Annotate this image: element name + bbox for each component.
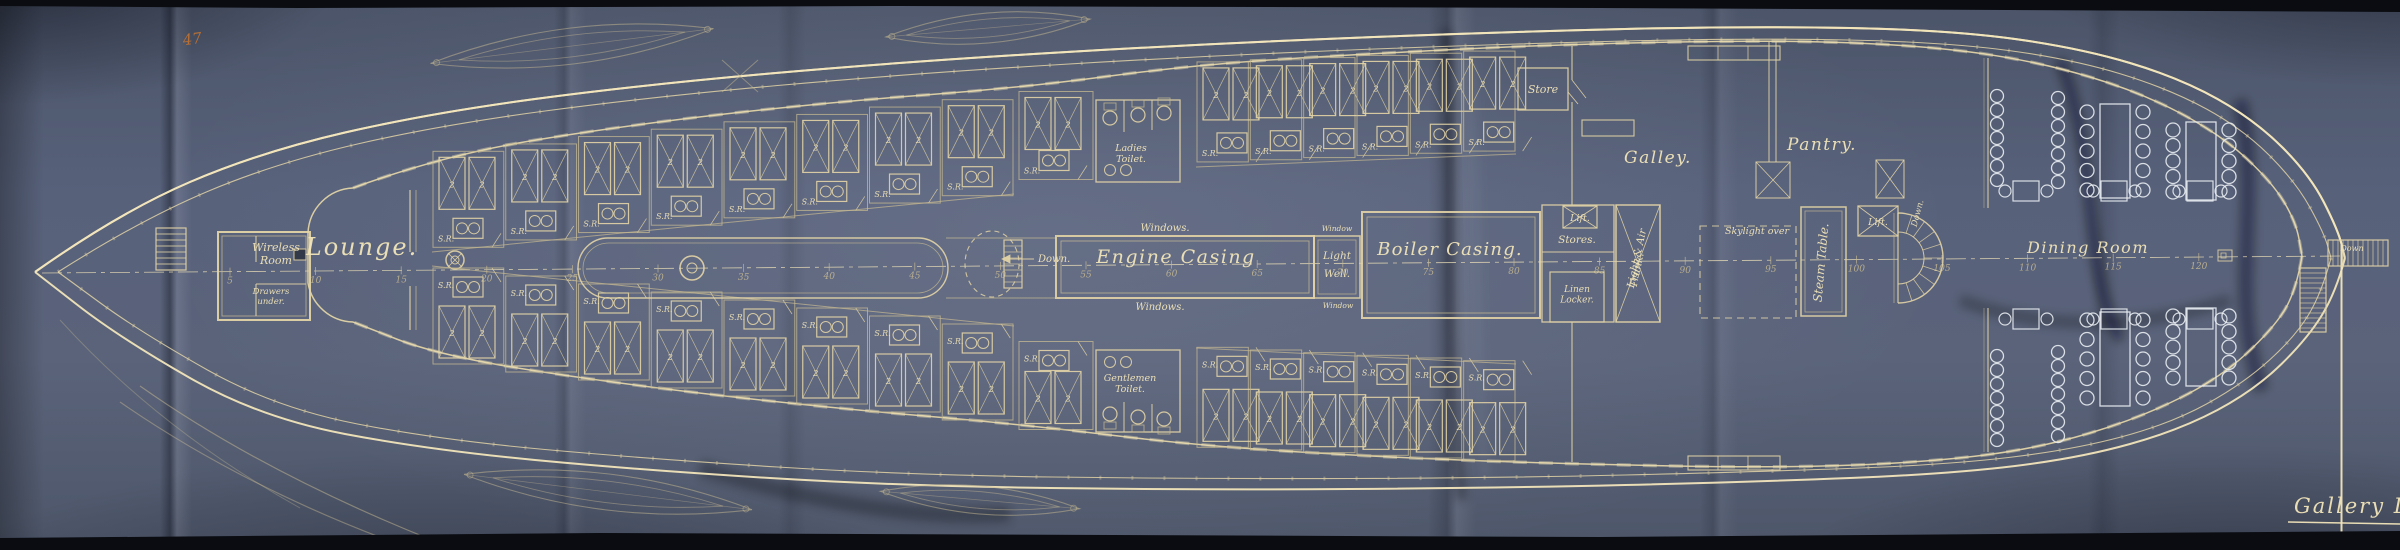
svg-text:2: 2 xyxy=(1296,89,1302,99)
svg-text:S.R.: S.R. xyxy=(947,337,963,346)
svg-text:2: 2 xyxy=(842,369,848,379)
label-window-lightwell-bottom: Window xyxy=(1323,301,1354,310)
station-40: 40 xyxy=(822,272,835,282)
svg-text:2: 2 xyxy=(667,353,673,363)
stateroom-top-amidships-small: 22S.R. xyxy=(1019,92,1093,180)
svg-text:S.R.: S.R. xyxy=(511,289,527,298)
svg-text:2: 2 xyxy=(624,166,630,176)
stateroom-bottom-amidships-small: 22S.R. xyxy=(1019,342,1093,430)
label-down-forward: Down. xyxy=(1037,254,1070,265)
light-well-box xyxy=(1314,236,1360,298)
label-wireless-room: Room xyxy=(259,254,292,267)
label-steam-table: Steam Table. xyxy=(1811,223,1832,303)
ladies-toilet-block xyxy=(1096,98,1180,182)
svg-text:S.R.: S.R. xyxy=(1362,368,1378,377)
svg-text:S.R.: S.R. xyxy=(583,297,599,306)
station-90: 90 xyxy=(1679,266,1691,276)
skylight-dashed xyxy=(1700,226,1796,318)
station-80: 80 xyxy=(1508,267,1520,277)
svg-text:2: 2 xyxy=(1296,415,1302,425)
svg-text:2: 2 xyxy=(551,337,557,347)
svg-text:2: 2 xyxy=(1266,415,1272,425)
label-dining-room: Dining Room xyxy=(2026,238,2149,257)
svg-text:S.R.: S.R. xyxy=(438,281,454,290)
svg-text:2: 2 xyxy=(1212,412,1218,422)
svg-text:2: 2 xyxy=(958,385,964,395)
svg-text:2: 2 xyxy=(1402,420,1408,430)
svg-text:2: 2 xyxy=(1034,395,1040,405)
svg-text:S.R.: S.R. xyxy=(583,220,599,229)
svg-text:S.R.: S.R. xyxy=(1309,145,1325,154)
svg-text:2: 2 xyxy=(624,345,630,355)
label-light-well: Light xyxy=(1322,250,1352,262)
svg-text:2: 2 xyxy=(478,329,484,339)
svg-text:2: 2 xyxy=(594,166,600,176)
svg-text:2: 2 xyxy=(1509,426,1515,436)
svg-text:2: 2 xyxy=(1456,82,1462,92)
label-linen-locker: Locker. xyxy=(1559,296,1594,306)
label-linen-locker: Linen xyxy=(1563,285,1590,295)
lifeboat-2 xyxy=(885,4,1092,52)
svg-text:S.R.: S.R. xyxy=(947,183,963,192)
photo-edges xyxy=(0,0,2400,550)
svg-text:2: 2 xyxy=(812,369,818,379)
label-down-stern-ladder: Down xyxy=(2339,244,2363,253)
station-115: 115 xyxy=(2105,263,2122,273)
hull-outline xyxy=(35,27,2345,550)
svg-text:2: 2 xyxy=(1319,87,1325,97)
svg-text:S.R.: S.R. xyxy=(729,313,745,322)
svg-text:2: 2 xyxy=(448,329,454,339)
svg-text:S.R.: S.R. xyxy=(1202,149,1218,158)
svg-text:2: 2 xyxy=(1479,426,1485,436)
svg-text:2: 2 xyxy=(769,151,775,161)
svg-text:S.R.: S.R. xyxy=(1024,167,1040,176)
svg-text:2: 2 xyxy=(769,361,775,371)
label-ladies-toilet: Toilet. xyxy=(1116,154,1146,165)
label-engine-casing: Engine Casing xyxy=(1095,246,1255,268)
svg-text:2: 2 xyxy=(1349,418,1355,428)
svg-text:S.R.: S.R. xyxy=(1024,355,1040,364)
svg-text:S.R.: S.R. xyxy=(656,212,672,221)
label-boiler-casing: Boiler Casing. xyxy=(1376,239,1523,260)
svg-text:2: 2 xyxy=(1509,80,1515,90)
foremast xyxy=(446,251,464,269)
label-drawers-under: Drawers xyxy=(252,287,290,297)
svg-text:2: 2 xyxy=(1426,423,1432,433)
svg-text:S.R.: S.R. xyxy=(1255,147,1271,156)
label-stores: Stores. xyxy=(1558,234,1596,246)
svg-text:2: 2 xyxy=(1426,82,1432,92)
svg-text:S.R.: S.R. xyxy=(1309,366,1325,375)
svg-text:2: 2 xyxy=(667,158,673,168)
svg-text:S.R.: S.R. xyxy=(1202,360,1218,369)
label-ladies-toilet: Ladies xyxy=(1114,143,1147,154)
label-gallery-deck-title: Gallery D xyxy=(2294,494,2400,518)
svg-text:2: 2 xyxy=(521,337,527,347)
svg-text:2: 2 xyxy=(1266,89,1272,99)
svg-text:2: 2 xyxy=(988,385,994,395)
svg-text:2: 2 xyxy=(885,136,891,146)
label-lift-forward: Lift. xyxy=(1569,213,1590,224)
svg-text:2: 2 xyxy=(594,345,600,355)
svg-text:2: 2 xyxy=(1372,84,1378,94)
svg-text:2: 2 xyxy=(1064,395,1070,405)
label-gentlemen-toilet: Toilet. xyxy=(1115,384,1145,395)
svg-text:S.R.: S.R. xyxy=(1469,374,1485,383)
station-5: 5 xyxy=(227,277,233,287)
label-lift-aft: Lift. xyxy=(1867,217,1888,228)
label-gentlemen-toilet: Gentlemen xyxy=(1104,373,1157,384)
svg-text:2: 2 xyxy=(478,180,484,190)
label-galley: Galley. xyxy=(1624,148,1692,168)
svg-text:S.R.: S.R. xyxy=(511,227,527,236)
station-30: 30 xyxy=(652,273,664,283)
svg-text:2: 2 xyxy=(812,143,818,153)
svg-text:S.R.: S.R. xyxy=(1255,363,1271,372)
label-light-well: Well. xyxy=(1324,268,1350,280)
svg-text:2: 2 xyxy=(1034,121,1040,131)
label-lounge: Lounge. xyxy=(305,233,419,261)
station-10: 10 xyxy=(310,276,322,286)
svg-text:2: 2 xyxy=(1212,91,1218,101)
svg-text:S.R.: S.R. xyxy=(1415,371,1431,380)
lifeboats xyxy=(428,4,1091,527)
label-drawers-under: under. xyxy=(257,297,284,307)
svg-text:S.R.: S.R. xyxy=(802,321,818,330)
svg-text:S.R.: S.R. xyxy=(874,190,890,199)
svg-text:2: 2 xyxy=(739,151,745,161)
label-windows-engine-top: Windows. xyxy=(1140,223,1189,234)
stateroom-row-top-forward: 22S.R.22S.R.22S.R.22S.R.22S.R.22S.R.22S.… xyxy=(433,100,1013,248)
svg-text:2: 2 xyxy=(697,353,703,363)
svg-text:2: 2 xyxy=(1064,121,1070,131)
label-wireless-room: Wireless xyxy=(252,241,300,254)
svg-text:2: 2 xyxy=(842,143,848,153)
svg-text:2: 2 xyxy=(1402,84,1408,94)
station-75: 75 xyxy=(1423,268,1435,278)
svg-text:2: 2 xyxy=(521,173,527,183)
label-pantry: Pantry. xyxy=(1786,135,1857,155)
svg-text:2: 2 xyxy=(1456,423,1462,433)
svg-text:2: 2 xyxy=(958,129,964,139)
station-100: 100 xyxy=(1848,265,1865,275)
gallery-deck-plan: 5101520253035404550556065707580859095100… xyxy=(0,0,2400,550)
svg-text:2: 2 xyxy=(1319,418,1325,428)
station-60: 60 xyxy=(1166,270,1178,280)
svg-text:S.R.: S.R. xyxy=(1362,142,1378,151)
svg-text:2: 2 xyxy=(1479,80,1485,90)
station-65: 65 xyxy=(1251,269,1263,279)
svg-text:S.R.: S.R. xyxy=(802,197,818,206)
label-down-aft-stair: Down. xyxy=(1909,199,1926,229)
station-120: 120 xyxy=(2190,262,2207,272)
svg-text:S.R.: S.R. xyxy=(874,329,890,338)
svg-text:2: 2 xyxy=(551,173,557,183)
label-window-lightwell-top: Window xyxy=(1322,224,1353,233)
svg-text:2: 2 xyxy=(1242,91,1248,101)
blueprint-photo: 5101520253035404550556065707580859095100… xyxy=(0,0,2400,550)
svg-text:S.R.: S.R. xyxy=(656,305,672,314)
svg-text:2: 2 xyxy=(697,158,703,168)
station-55: 55 xyxy=(1080,270,1092,280)
bow-ladder xyxy=(156,228,186,270)
svg-text:S.R.: S.R. xyxy=(729,205,745,214)
svg-text:2: 2 xyxy=(448,180,454,190)
station-15: 15 xyxy=(395,275,407,285)
station-45: 45 xyxy=(908,272,921,282)
svg-text:2: 2 xyxy=(915,136,921,146)
station-110: 110 xyxy=(2019,263,2036,273)
svg-text:2: 2 xyxy=(988,129,994,139)
svg-text:2: 2 xyxy=(1349,87,1355,97)
station-95: 95 xyxy=(1765,265,1777,275)
label-windows-engine-bottom: Windows. xyxy=(1135,302,1184,313)
svg-text:2: 2 xyxy=(739,361,745,371)
svg-text:S.R.: S.R. xyxy=(438,234,454,243)
svg-text:2: 2 xyxy=(1242,412,1248,422)
svg-text:S.R.: S.R. xyxy=(1415,140,1431,149)
svg-text:2: 2 xyxy=(885,377,891,387)
stateroom-row-top-mid: 22S.R.22S.R.22S.R.22S.R.22S.R.22S.R. xyxy=(1197,51,1532,162)
station-35: 35 xyxy=(738,273,750,283)
station-20: 20 xyxy=(480,275,493,285)
svg-text:S.R.: S.R. xyxy=(1469,138,1485,147)
label-store: Store xyxy=(1528,83,1559,96)
svg-text:2: 2 xyxy=(1372,420,1378,430)
lifeboat-1 xyxy=(428,11,715,81)
label-sheet-number: 47 xyxy=(181,29,204,50)
label-skylight-over: Skylight over xyxy=(1725,226,1790,237)
svg-text:2: 2 xyxy=(915,377,921,387)
deckhouse-outline xyxy=(308,41,2302,467)
